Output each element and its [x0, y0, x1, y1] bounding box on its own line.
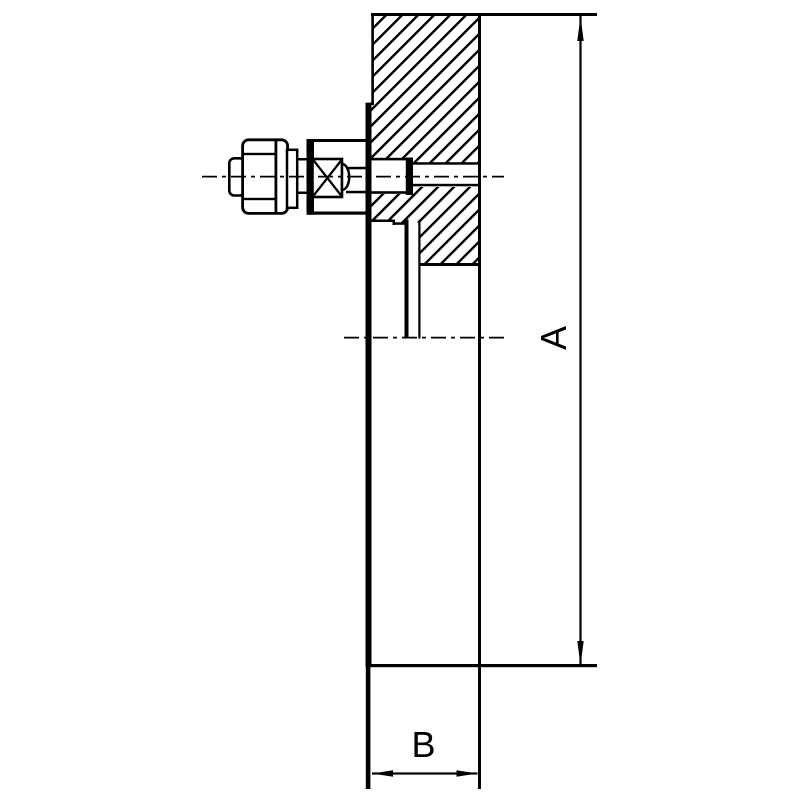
hex-nut-chamfer-top-line	[244, 153, 276, 155]
dimension-a-arrow-bottom-icon	[577, 641, 583, 666]
stud-neck-top-line	[346, 167, 367, 170]
thread-hole-top-line	[410, 162, 479, 165]
dimension-a-arrow-top-icon	[577, 17, 583, 42]
washer	[287, 150, 297, 208]
sleeve-bottom-line	[307, 212, 367, 215]
dimension-b-arrow-left-icon	[372, 770, 393, 777]
hex-nut-chamfer-bottom-line	[244, 198, 276, 200]
counterbore-bottom-line	[366, 191, 408, 194]
dimension-b-arrow-right-icon	[457, 770, 478, 777]
flange-section-drawing	[0, 0, 800, 800]
counterbore-top-line	[366, 158, 408, 161]
dimension-b-extension-right	[478, 667, 481, 789]
dimension-b-extension-left	[366, 667, 371, 789]
section-hatch-areas	[367, 14, 478, 264]
thread-hole-fill	[411, 164, 478, 183]
sleeve-top-line	[307, 139, 367, 142]
plate-bottom-edge	[366, 664, 598, 667]
thread-hole-bottom-line	[410, 184, 479, 187]
hatch-region-upper	[367, 14, 478, 163]
plate-right-edge	[478, 13, 481, 667]
hatch-region-lower	[367, 187, 478, 264]
plate-top-edge	[371, 13, 597, 16]
stud-neck-bottom-line	[346, 191, 367, 194]
plate-left-edge-upper	[371, 13, 374, 105]
hatch-block-bottom-line	[419, 263, 480, 266]
counterbore-fill	[367, 160, 407, 191]
dimension-a-line	[579, 16, 581, 666]
dimension-a-label: A	[534, 318, 574, 358]
dimension-a	[577, 16, 583, 666]
technical-drawing-canvas: A B	[0, 0, 800, 800]
bore-edge-line	[418, 221, 420, 339]
recess-edge-line	[405, 220, 409, 339]
plate-left-edge	[366, 103, 372, 664]
dimension-b-label: B	[404, 725, 444, 765]
